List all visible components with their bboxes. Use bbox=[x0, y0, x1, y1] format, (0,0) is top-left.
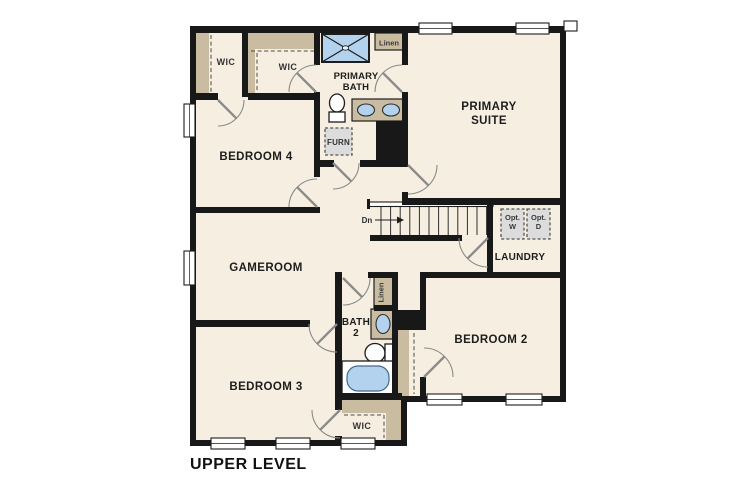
bedroom3-label: BEDROOM 3 bbox=[229, 381, 302, 393]
opt-washer-label: Opt. bbox=[505, 213, 520, 222]
window bbox=[427, 394, 462, 405]
wic-bedroom3-label: WIC bbox=[353, 421, 372, 431]
toilet-primary bbox=[330, 94, 345, 112]
window bbox=[211, 438, 245, 449]
wic-primary-label: WIC bbox=[279, 62, 298, 72]
window bbox=[506, 394, 542, 405]
page-title: UPPER LEVEL bbox=[190, 456, 307, 473]
opt-dryer-label-2: D bbox=[536, 222, 542, 231]
floor-plan-svg: WIC WIC PRIMARY BATH Linen PRIMARY SUITE… bbox=[0, 0, 750, 500]
opt-washer-label-2: W bbox=[509, 222, 517, 231]
window bbox=[516, 23, 549, 34]
corner-notch bbox=[564, 21, 577, 31]
linen-bath2-label: Linen bbox=[377, 282, 386, 302]
window bbox=[419, 23, 452, 34]
bedroom2-label: BEDROOM 2 bbox=[454, 334, 527, 346]
window bbox=[341, 438, 375, 449]
wic-bedroom4-label: WIC bbox=[217, 57, 236, 67]
primary-suite-label-2: SUITE bbox=[471, 115, 507, 127]
laundry-label: LAUNDRY bbox=[495, 252, 546, 263]
sink-primary-left bbox=[358, 104, 375, 116]
furnace-label: FURN bbox=[327, 138, 350, 147]
window bbox=[184, 104, 195, 137]
primary-bath-label-2: BATH bbox=[343, 82, 369, 93]
bedroom4-label: BEDROOM 4 bbox=[219, 151, 292, 163]
stairs-down-label: Dn bbox=[362, 216, 373, 225]
floor-plan-page: WIC WIC PRIMARY BATH Linen PRIMARY SUITE… bbox=[0, 0, 750, 500]
sink-primary-right bbox=[383, 104, 400, 116]
sink-bath2 bbox=[376, 315, 390, 334]
window bbox=[184, 251, 195, 285]
window bbox=[276, 438, 310, 449]
shower-drain bbox=[342, 46, 348, 50]
bath2-label: BATH bbox=[342, 317, 370, 328]
linen-primary-label: Linen bbox=[379, 39, 399, 48]
bathtub bbox=[347, 366, 389, 391]
opt-dryer-label: Opt. bbox=[531, 213, 546, 222]
primary-suite-label: PRIMARY bbox=[461, 101, 516, 113]
chase-primary bbox=[376, 121, 408, 162]
bath2-label-2: 2 bbox=[353, 328, 359, 339]
primary-bath-label: PRIMARY bbox=[334, 71, 379, 82]
toilet-bath2 bbox=[365, 344, 385, 363]
gameroom-label: GAMEROOM bbox=[229, 262, 302, 274]
